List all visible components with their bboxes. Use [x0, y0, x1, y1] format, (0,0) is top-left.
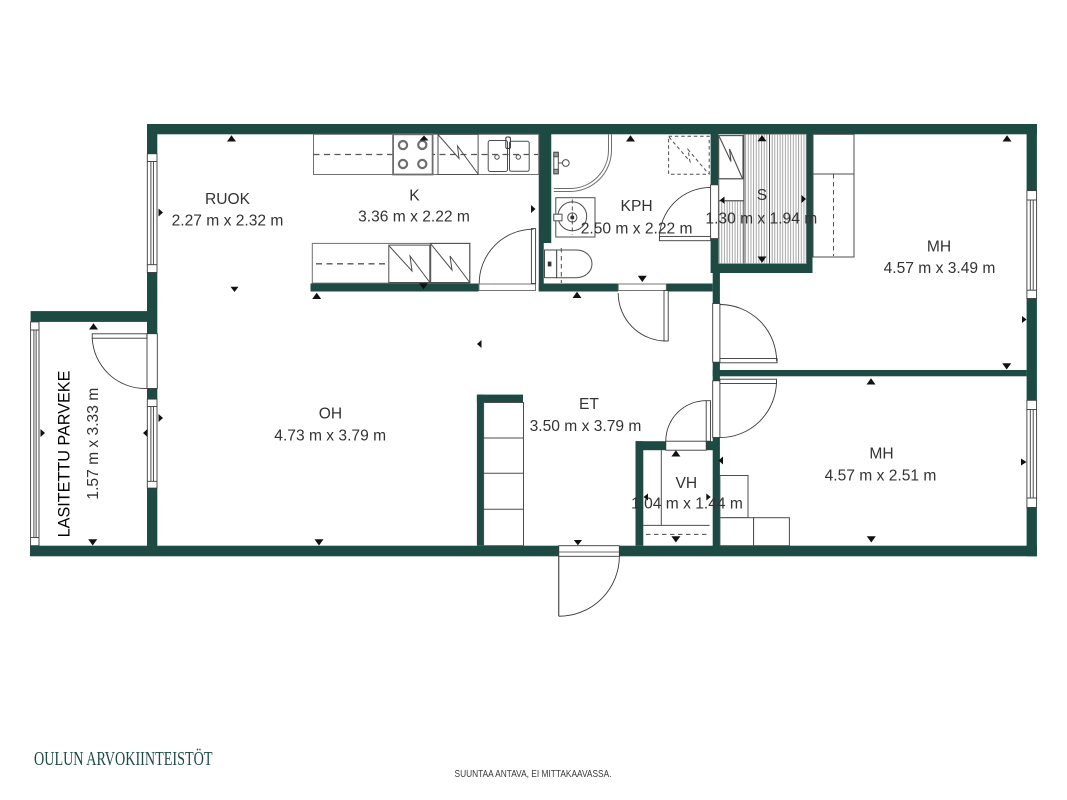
svg-text:VH: VH: [675, 475, 697, 492]
svg-text:OULUN ARVOKIINTEISTÖT: OULUN ARVOKIINTEISTÖT: [34, 749, 213, 770]
svg-text:OH: OH: [319, 405, 342, 422]
svg-text:MH: MH: [869, 446, 893, 463]
svg-text:2.27 m x 2.32 m: 2.27 m x 2.32 m: [172, 213, 284, 230]
svg-text:S: S: [757, 187, 767, 204]
svg-text:1.30 m x 1.94 m: 1.30 m x 1.94 m: [705, 210, 817, 227]
svg-text:ET: ET: [579, 396, 599, 413]
svg-text:3.50 m x 3.79 m: 3.50 m x 3.79 m: [530, 418, 642, 435]
svg-text:4.73 m x 3.79 m: 4.73 m x 3.79 m: [274, 427, 386, 444]
svg-text:SUUNTAA ANTAVA, EI MITTAKAAVAS: SUUNTAA ANTAVA, EI MITTAKAAVASSA.: [455, 769, 612, 780]
svg-text:3.36 m x 2.22 m: 3.36 m x 2.22 m: [358, 209, 470, 226]
svg-text:1.57 m x 3.33 m: 1.57 m x 3.33 m: [85, 388, 102, 500]
svg-text:LASITETTU PARVEKE: LASITETTU PARVEKE: [56, 370, 74, 537]
svg-text:KPH: KPH: [621, 198, 653, 215]
svg-text:4.57 m x 2.51 m: 4.57 m x 2.51 m: [825, 468, 937, 485]
svg-text:2.50 m x 2.22 m: 2.50 m x 2.22 m: [581, 220, 693, 237]
svg-text:K: K: [409, 187, 420, 204]
svg-text:MH: MH: [927, 239, 951, 256]
svg-text:4.57 m x 3.49 m: 4.57 m x 3.49 m: [884, 260, 996, 277]
svg-text:RUOK: RUOK: [205, 191, 251, 208]
